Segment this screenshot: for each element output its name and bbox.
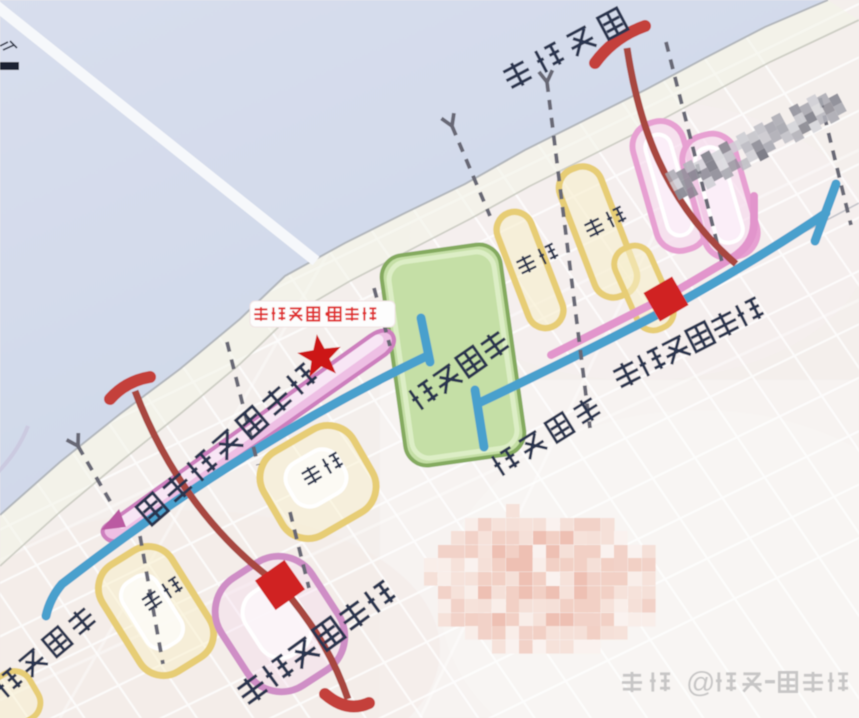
svg-text:@: @ [686, 667, 715, 699]
